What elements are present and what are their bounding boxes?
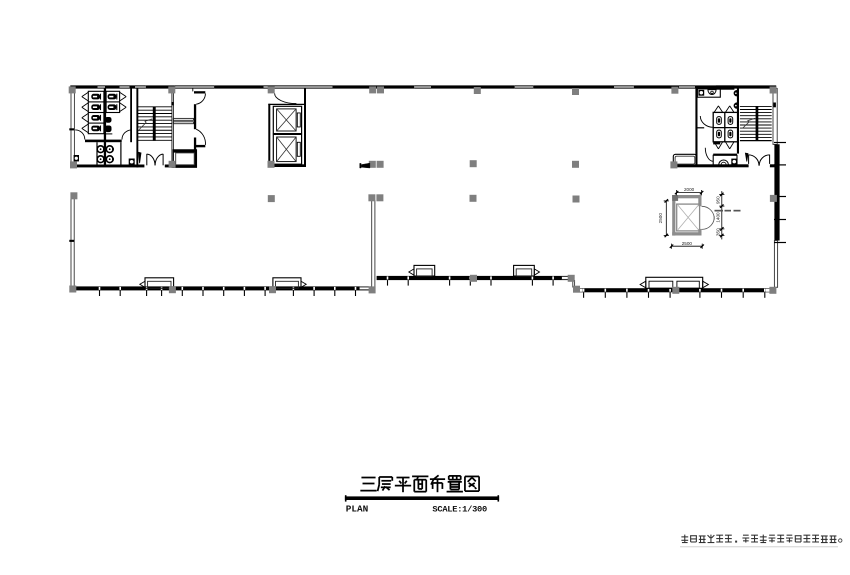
svg-text:950: 950 xyxy=(715,196,720,204)
svg-text:SCALE:1/300: SCALE:1/300 xyxy=(432,504,487,514)
svg-text:350: 350 xyxy=(715,228,720,236)
svg-text:2000: 2000 xyxy=(684,187,695,192)
svg-text:1400: 1400 xyxy=(715,212,720,223)
svg-text:2500: 2500 xyxy=(682,241,693,246)
svg-text:2500: 2500 xyxy=(658,213,663,224)
svg-text:PLAN: PLAN xyxy=(346,503,369,514)
